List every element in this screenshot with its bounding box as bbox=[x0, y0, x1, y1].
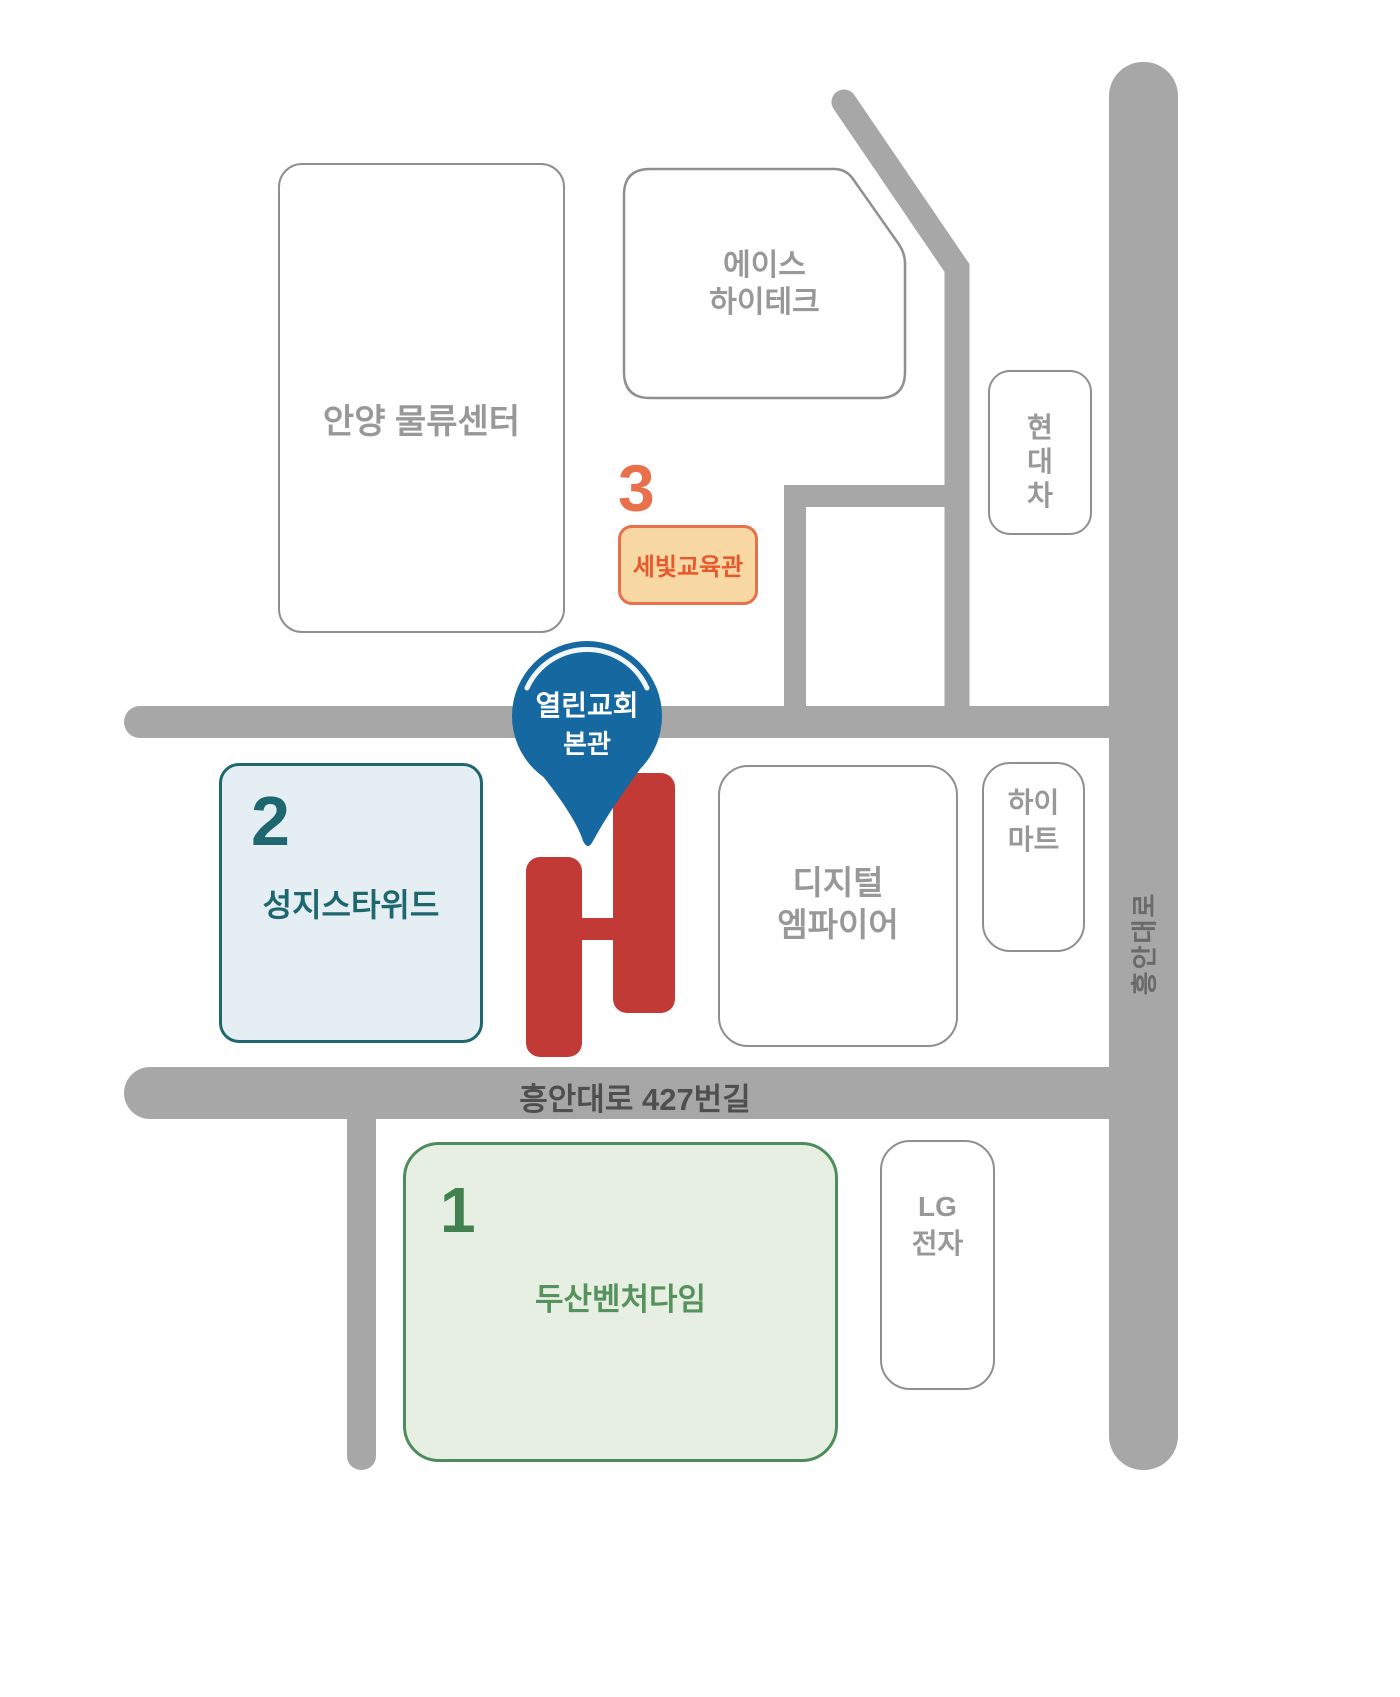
label-road-427: 흥안대로 427번길 bbox=[420, 1074, 850, 1119]
road-connector bbox=[795, 496, 957, 722]
label-lg-line2: 전자 bbox=[880, 1225, 995, 1262]
label-lg-electronics: LG 전자 bbox=[880, 1188, 995, 1262]
label-road-heungan: 흥안대로 bbox=[1125, 844, 1162, 1044]
label-ace-line2: 하이테크 bbox=[624, 285, 905, 322]
label-himart: 하이 마트 bbox=[982, 784, 1085, 858]
label-lg-line1: LG bbox=[880, 1188, 995, 1225]
marker-number-3: 3 bbox=[618, 455, 655, 521]
label-ace-hitech: 에이스 하이테크 bbox=[624, 248, 905, 321]
label-hyundai-char2: 대 bbox=[988, 445, 1092, 479]
label-digital-line1: 디지털 bbox=[718, 862, 958, 904]
label-doosan-venturedigm: 두산벤처다임 bbox=[403, 1281, 838, 1319]
label-anyang-logistics: 안양 물류센터 bbox=[278, 402, 565, 443]
label-digital-empire: 디지털 엠파이어 bbox=[718, 862, 958, 946]
label-hyundai-char3: 차 bbox=[988, 479, 1092, 513]
label-ace-line1: 에이스 bbox=[624, 248, 905, 285]
church-left-wing bbox=[526, 857, 582, 1057]
label-sungji-starwith: 성지스타위드 bbox=[219, 886, 483, 925]
church-center-link bbox=[560, 918, 635, 940]
marker-number-2: 2 bbox=[251, 786, 290, 856]
location-map: 안양 물류센터 에이스 하이테크 현 대 차 3 세빛교육관 2 성지스타위드 … bbox=[0, 0, 1400, 1697]
pin-label-line2: 본관 bbox=[512, 724, 662, 761]
road-branch-vertical bbox=[347, 1090, 376, 1470]
building-lg-electronics bbox=[880, 1140, 995, 1390]
pin-label-line1: 열린교회 bbox=[512, 684, 662, 724]
label-himart-line1: 하이 bbox=[982, 784, 1085, 821]
label-sebit-education: 세빛교육관 bbox=[618, 553, 758, 582]
label-himart-line2: 마트 bbox=[982, 821, 1085, 858]
road-main-vertical bbox=[1109, 62, 1178, 1470]
label-hyundai-motors: 현 대 차 bbox=[988, 411, 1092, 513]
church-right-wing bbox=[613, 773, 675, 1013]
marker-number-1: 1 bbox=[440, 1178, 476, 1242]
label-digital-line2: 엠파이어 bbox=[718, 904, 958, 946]
label-hyundai-char1: 현 bbox=[988, 411, 1092, 445]
building-anyang-logistics bbox=[278, 163, 565, 633]
